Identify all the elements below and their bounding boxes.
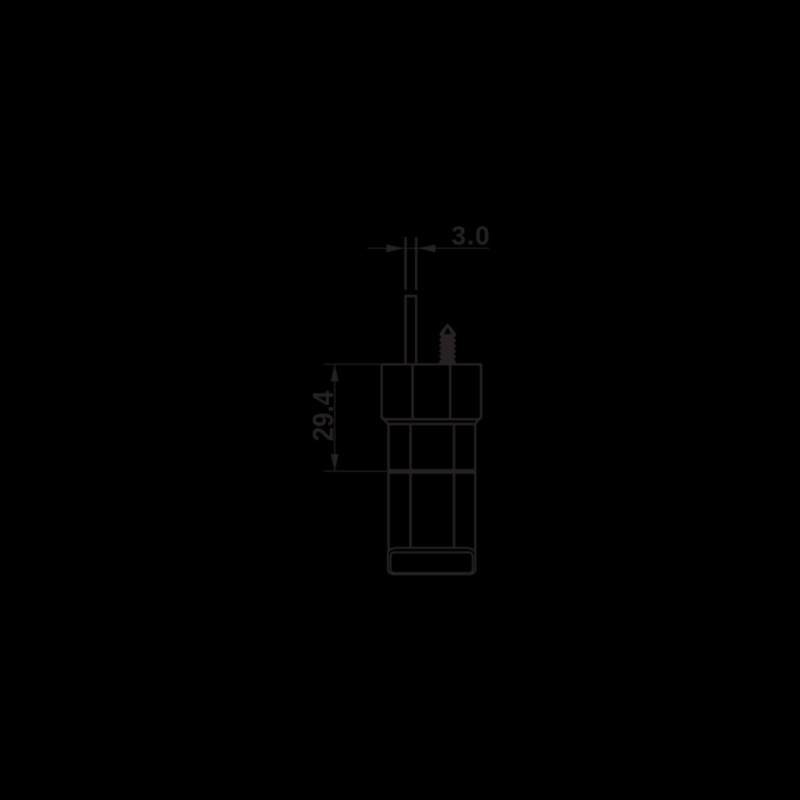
svg-text:3.0: 3.0 — [452, 221, 491, 251]
svg-text:29.4: 29.4 — [306, 390, 339, 441]
